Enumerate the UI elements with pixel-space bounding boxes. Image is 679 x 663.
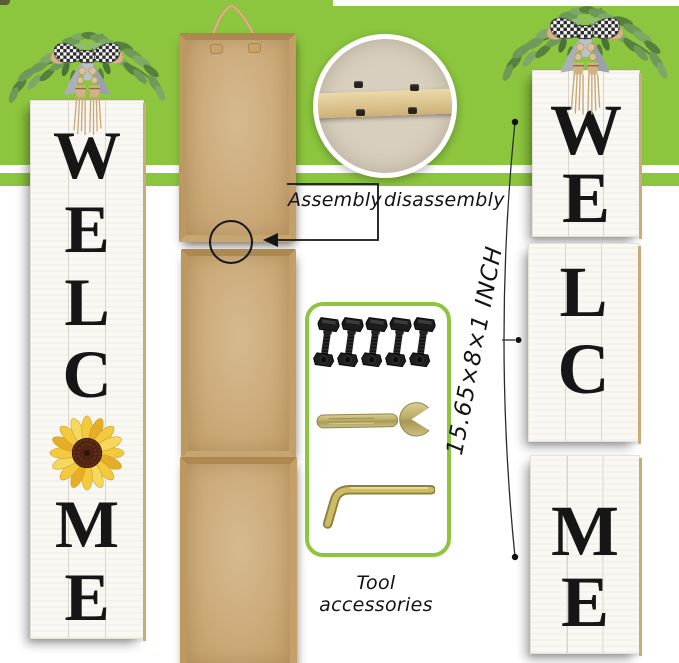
- product-infographic: W E L C M E: [0, 0, 679, 663]
- assembly-label: Assembly: [288, 189, 372, 211]
- back-board-middle: [181, 249, 296, 458]
- screw-icon: [356, 109, 365, 116]
- sunflower-icon: [43, 409, 131, 497]
- greenery-bow-icon: [502, 0, 668, 147]
- wood-batten: [313, 88, 457, 118]
- sign-letter: E: [531, 565, 639, 639]
- welcome-sign-assembled: W E L C M E: [30, 100, 144, 639]
- screw-icon: [410, 84, 419, 91]
- sign-letter: L: [31, 268, 143, 336]
- sign-panel-me: M E: [530, 455, 640, 654]
- sign-letter: M: [531, 494, 639, 568]
- sign-letter: M: [31, 490, 143, 558]
- disassembly-label: disassembly: [384, 189, 514, 211]
- sign-letter: E: [31, 563, 143, 631]
- sign-letter: L: [529, 255, 638, 329]
- sign-letter: E: [533, 161, 639, 235]
- back-board-top: [179, 33, 296, 242]
- wrench-icon: [315, 397, 442, 443]
- sign-panel-lc: L C: [528, 243, 639, 442]
- assembly-detail-inset: [313, 34, 457, 178]
- back-board-bottom: [180, 457, 297, 663]
- sign-letter: C: [529, 332, 638, 406]
- screw-icon: [408, 107, 417, 114]
- sign-letter: C: [31, 340, 143, 408]
- tool-accessories-box: [305, 302, 451, 557]
- greenery-bow-icon: [8, 26, 166, 166]
- hex-key-icon: [321, 478, 435, 532]
- sign-letter: E: [31, 195, 143, 263]
- screw-icon: [354, 81, 363, 88]
- tool-accessories-label: Tool accessories: [306, 572, 446, 616]
